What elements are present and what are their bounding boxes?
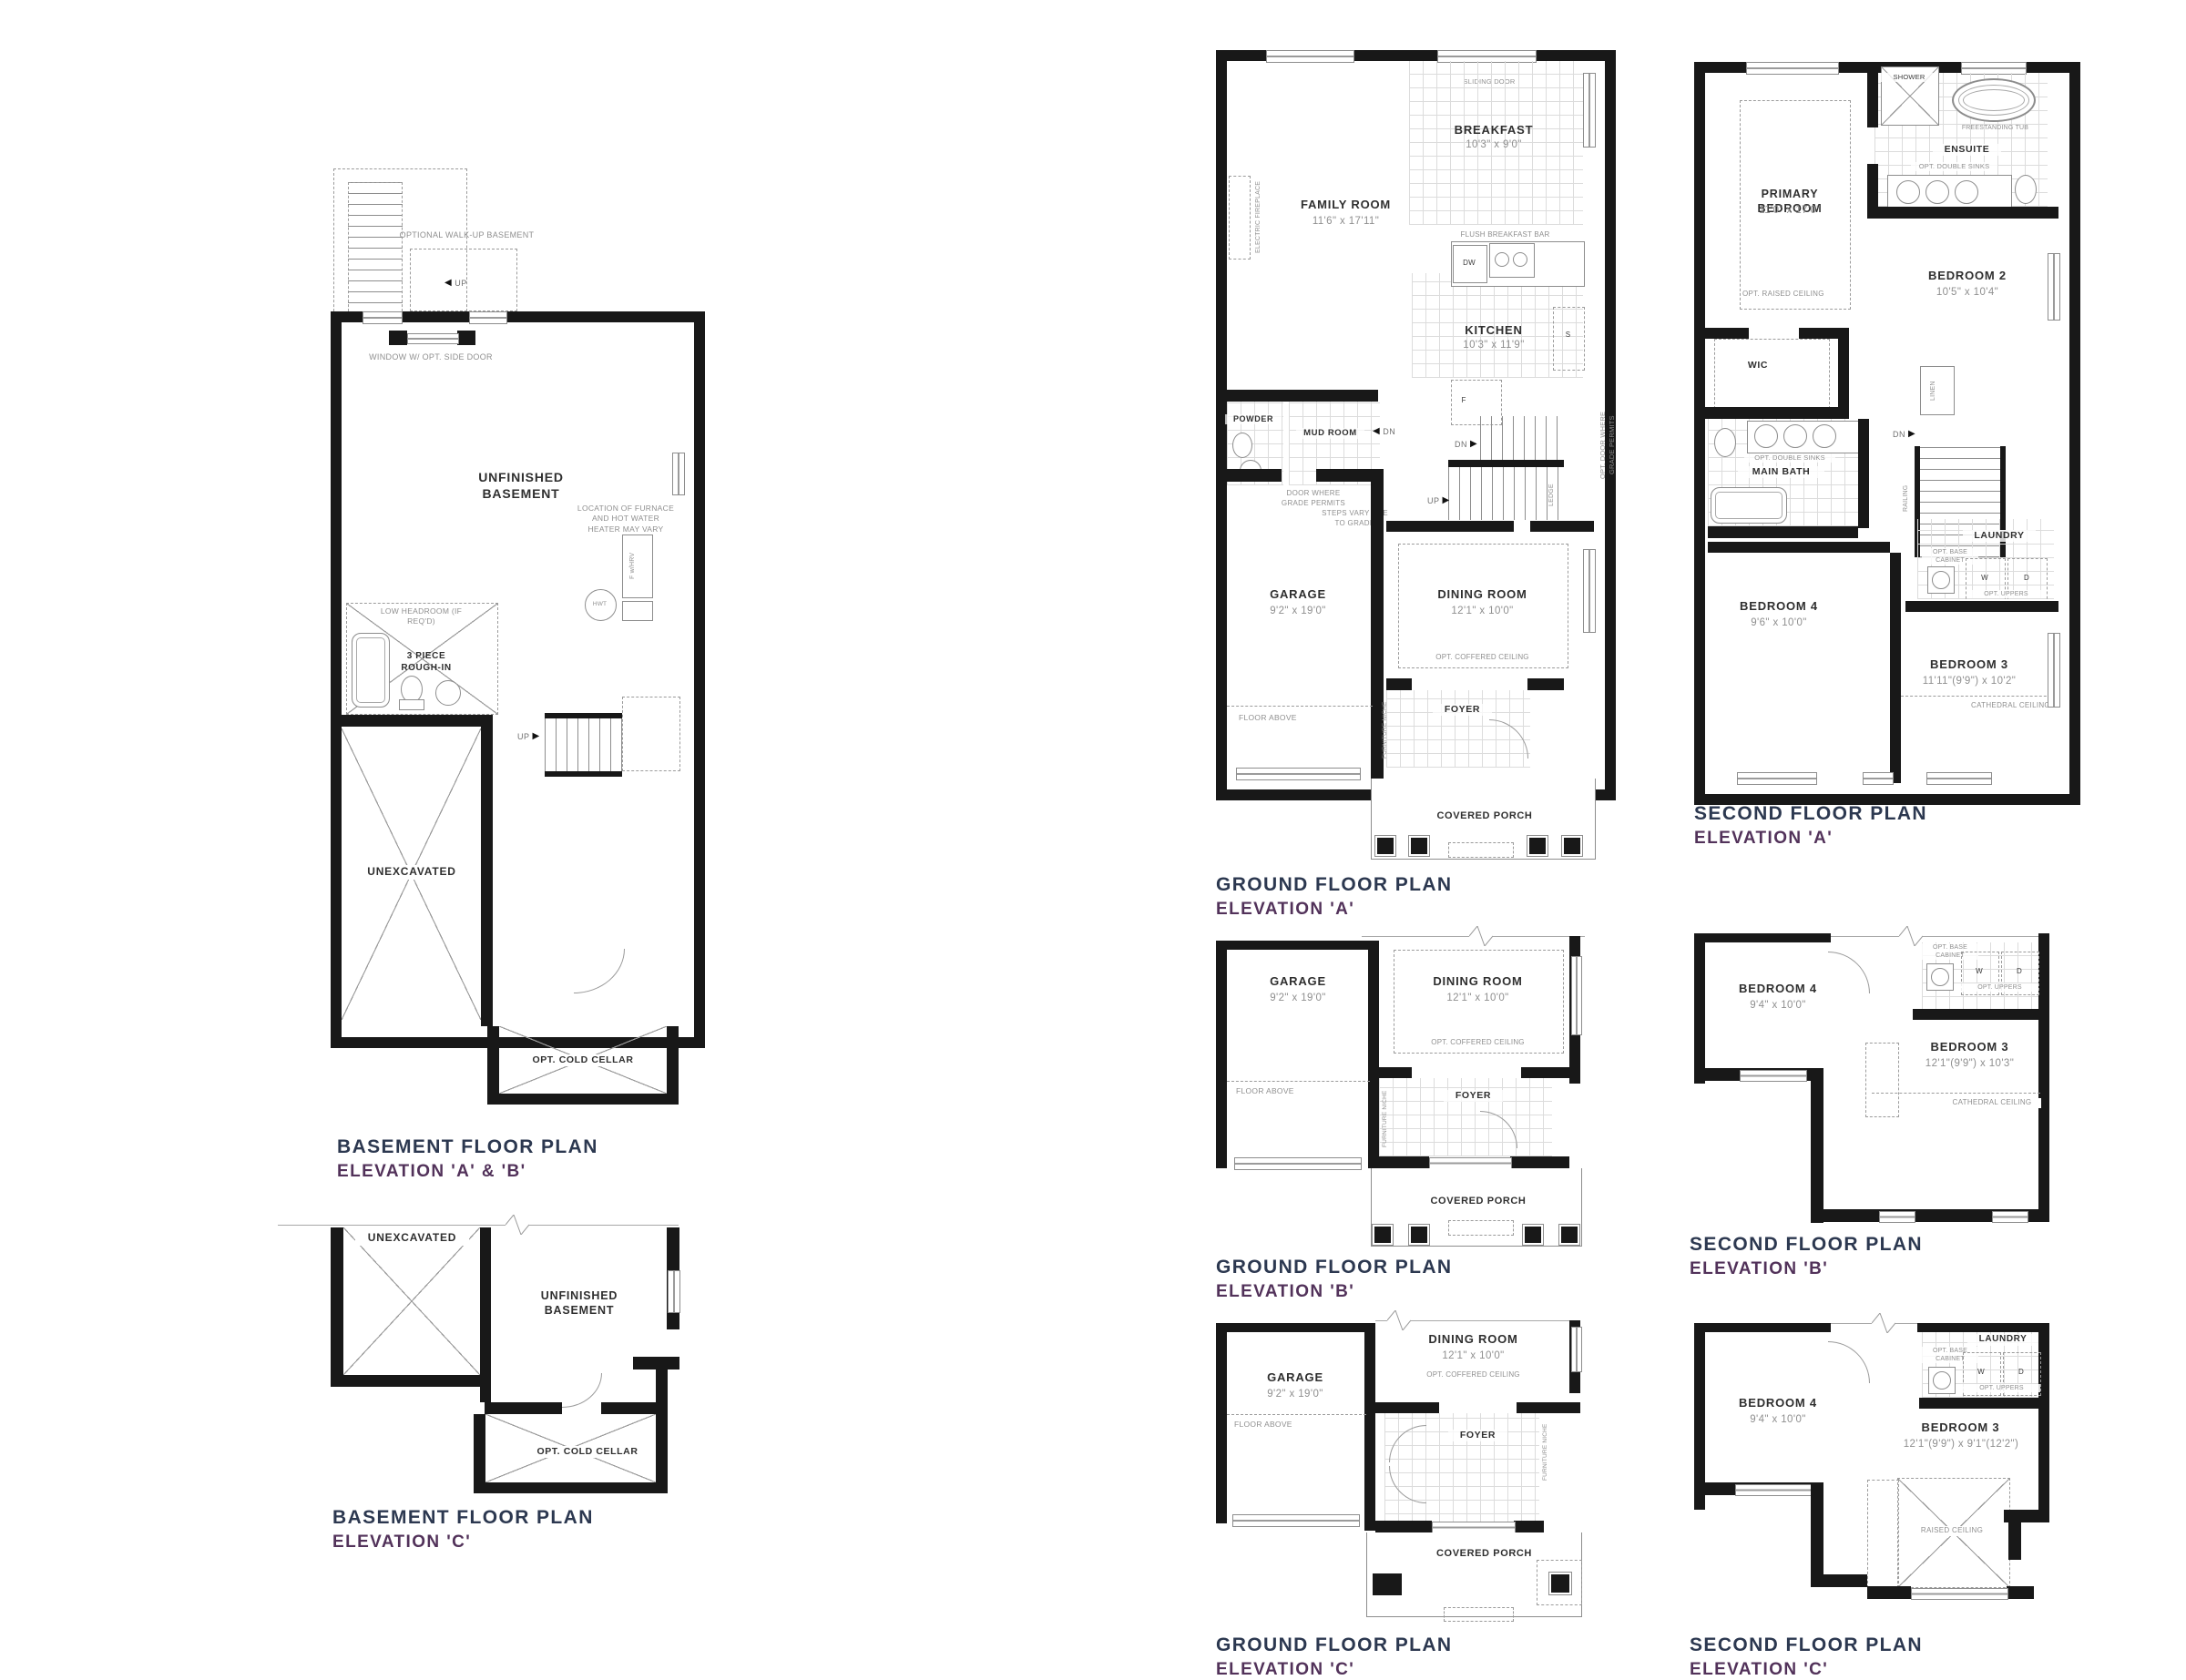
room-label: UNFINISHED BASEMENT	[466, 469, 576, 502]
wall-segment	[485, 1402, 562, 1414]
window	[1583, 549, 1596, 633]
tub-label: FREESTANDING TUB	[1952, 124, 2038, 132]
plan-subtitle: ELEVATION 'B'	[1690, 1259, 1923, 1279]
porch-step	[1448, 842, 1514, 858]
room-dims: 9'6" x 10'0"	[1729, 617, 1829, 628]
window	[1571, 956, 1582, 1035]
plan-subtitle: ELEVATION 'B'	[1216, 1282, 1452, 1302]
wall-segment	[1708, 542, 1890, 553]
room-dims: 12'1"(9'9") x 9'1"(12'2")	[1888, 1439, 2034, 1450]
coffered-label: OPT. COFFERED CEILING	[1398, 1038, 1558, 1047]
left-arrow-icon: ◀	[444, 279, 452, 288]
porch-post	[1375, 836, 1395, 856]
room-dims: 9'2" x 19'0"	[1248, 606, 1348, 616]
washer-label: W	[1961, 967, 1997, 976]
room-label: BEDROOM 4	[1728, 1396, 1828, 1411]
sink	[435, 680, 461, 706]
fireplace	[1229, 176, 1251, 260]
wall-segment	[474, 1414, 485, 1493]
wall-segment	[1375, 1402, 1439, 1413]
wall-segment	[1510, 1156, 1569, 1168]
toilet	[1714, 428, 1736, 457]
up-label: UP	[1427, 496, 1440, 505]
plan-subtitle: ELEVATION 'A'	[1216, 900, 1452, 920]
ground-plan-elevation-a: SLIDING DOOR BREAKFAST 10'3" x 9'0" FLUS…	[1216, 41, 1626, 929]
window	[2048, 633, 2060, 708]
room-label: MUD ROOM	[1296, 428, 1364, 439]
cathedral-line	[1901, 696, 2060, 697]
furniture-niche-label: FURNITURE NICHE	[1382, 1084, 1389, 1155]
closet	[1867, 1480, 1899, 1588]
right-arrow-icon: ▶	[1908, 430, 1915, 439]
window	[1740, 1070, 1807, 1082]
wall-segment	[1517, 1402, 1580, 1413]
room-dims: 9'2" x 19'0"	[1248, 993, 1348, 1003]
walkup-stairs	[348, 182, 403, 316]
room-label: BEDROOM 3	[1904, 1420, 2017, 1436]
door-arc	[562, 1373, 602, 1408]
door-grade-note: DOOR WHERE GRADE PERMITS	[1272, 489, 1354, 509]
plan-title: BASEMENT FLOOR PLAN	[332, 1507, 594, 1529]
railing-label: RAILING	[1902, 472, 1910, 524]
wall-segment	[1216, 941, 1227, 1168]
second-plan-elevation-b: OPT. BASE CABINET W D OPT. UPPERS BEDROO…	[1690, 929, 2086, 1261]
wall-segment	[633, 1357, 679, 1369]
room-label: POWDER	[1225, 414, 1282, 424]
wall-segment	[1811, 1482, 1823, 1587]
porch-post	[1549, 1573, 1571, 1594]
freestanding-tub	[1952, 78, 2036, 122]
floor-above-line	[1227, 1414, 1366, 1415]
wall-segment	[601, 1402, 668, 1414]
dryer-label: D	[2007, 574, 2046, 583]
wall-segment	[1694, 407, 1849, 419]
plan-title-block: SECOND FLOOR PLAN ELEVATION 'B'	[1690, 1234, 1923, 1279]
basement-plan-elevation-c: UNEXCAVATED UNFINISHED BASEMENT OPT. COL…	[328, 1220, 720, 1671]
floor-above-label: FLOOR ABOVE	[1236, 1086, 1313, 1096]
plan-subtitle: ELEVATION 'C'	[332, 1532, 594, 1553]
porch-post	[1523, 1225, 1543, 1245]
window	[1911, 1588, 2008, 1600]
garage-door	[1236, 768, 1361, 780]
plan-title: SECOND FLOOR PLAN	[1690, 1634, 1923, 1656]
sink-bowl	[1933, 1371, 1951, 1390]
ground-plan-elevation-b: GARAGE 9'2" x 19'0" FLOOR ABOVE DINING R…	[1216, 933, 1626, 1311]
right-arrow-icon: ▶	[533, 732, 540, 741]
uppers-label: OPT. UPPERS	[1967, 590, 2045, 598]
wall-segment	[1867, 1586, 1911, 1599]
wall-segment	[1811, 1068, 1823, 1223]
window	[1571, 1327, 1582, 1372]
porch-step	[1444, 1607, 1514, 1622]
wall-segment	[1368, 941, 1379, 1168]
wall-segment	[331, 1375, 491, 1387]
window	[1583, 73, 1596, 148]
wall-segment	[1913, 1009, 2049, 1020]
basement-plan-elevation-ab: OPTIONAL WALK-UP BASEMENT ◀UP WINDOW W/ …	[328, 118, 720, 1197]
wall-segment	[1386, 521, 1514, 532]
floor-above-line	[1227, 706, 1373, 707]
raised-ceiling-label: RAISED CEILING	[1906, 1526, 1997, 1536]
floor-plan-sheet: { "document": {"type": "architectural fl…	[0, 0, 2186, 1671]
garage-door	[1232, 1514, 1360, 1527]
room-label: GARAGE	[1248, 587, 1348, 603]
room-label: BREAKFAST	[1448, 123, 1539, 138]
closet	[1865, 1043, 1899, 1117]
raised-ceiling-label: OPT. RAISED CEILING	[1742, 290, 1844, 300]
stairs-lower	[1448, 467, 1564, 520]
stairs-up: UP▶	[517, 732, 540, 741]
room-label: DINING ROOM	[1425, 587, 1539, 603]
stairs-upper	[1480, 416, 1564, 460]
wall-segment	[1694, 933, 1831, 942]
room-dims: 12'1" x 10'0"	[1416, 1350, 1530, 1361]
plan-subtitle: ELEVATION 'A'	[1694, 829, 1927, 849]
wall-segment	[1527, 678, 1564, 690]
stove-label: S	[1553, 331, 1583, 340]
room-label: LAUNDRY	[1963, 530, 2036, 542]
side-door-window	[407, 333, 459, 344]
wall-segment	[1216, 1323, 1375, 1332]
porch-post	[1409, 1225, 1429, 1245]
room-label: LAUNDRY	[1967, 1334, 2038, 1346]
box	[622, 601, 653, 621]
porch-label: COVERED PORCH	[1418, 1548, 1550, 1561]
double-sinks-label: OPT. DOUBLE SINKS	[1744, 453, 1835, 463]
wall-segment	[2008, 1510, 2021, 1560]
toilet	[2015, 175, 2037, 204]
dryer-label: D	[2003, 1368, 2039, 1377]
dn-label: DN	[1455, 440, 1467, 449]
plan-title-block: BASEMENT FLOOR PLAN ELEVATION 'A' & 'B'	[337, 1136, 598, 1182]
room-label: GARAGE	[1245, 1370, 1345, 1386]
floor-above-label: FLOOR ABOVE	[1234, 1420, 1312, 1430]
wall-segment	[1858, 419, 1869, 528]
window	[1992, 1211, 2028, 1223]
sink	[1896, 180, 1920, 204]
room-label: BEDROOM 3	[1917, 1040, 2022, 1055]
dn-label: DN	[1383, 427, 1395, 436]
plan-title-block: SECOND FLOOR PLAN ELEVATION 'C'	[1690, 1634, 1923, 1680]
room-dims: 10'3" x 11'9"	[1444, 340, 1544, 351]
shower-label: SHOWER	[1881, 73, 1937, 82]
wall-segment	[1216, 941, 1375, 950]
double-sinks-label: OPT. DOUBLE SINKS	[1911, 162, 1997, 171]
wall-segment	[656, 1414, 668, 1493]
sink	[1955, 180, 1978, 204]
furnace-label: F w/HRV	[628, 539, 637, 592]
door-arc	[1828, 952, 1870, 993]
room-dims: 11'11"(9'9") x 10'2"	[1910, 676, 2028, 687]
right-arrow-icon: ▶	[1443, 496, 1450, 505]
wic-outline	[1714, 339, 1830, 409]
window	[668, 1270, 680, 1313]
cathedral-label: CATHEDRAL CEILING	[1963, 701, 2058, 711]
wall-segment	[1867, 73, 1878, 127]
sink-bowl	[1513, 252, 1527, 267]
wall-segment	[1905, 601, 2058, 612]
room-dims: 9'4" x 10'0"	[1728, 1000, 1828, 1011]
furniture-niche-label: FURNITURE NICHE	[1382, 695, 1389, 766]
walkup-label: OPTIONAL WALK-UP BASEMENT	[383, 229, 551, 240]
wall-segment	[2038, 933, 2049, 1220]
room-label: KITCHEN	[1444, 323, 1544, 339]
floor-above-label: FLOOR ABOVE	[1239, 713, 1316, 723]
room-label: OPT. COLD CELLAR	[533, 1446, 642, 1458]
room-label: GARAGE	[1248, 974, 1348, 990]
linen-label: LINEN	[1929, 372, 1937, 410]
porch-label: COVERED PORCH	[1415, 1196, 1542, 1208]
wall-segment	[1379, 1067, 1412, 1078]
second-plan-elevation-a: SHOWER FREESTANDING TUB ENSUITE OPT. DOU…	[1694, 46, 2086, 847]
room-label: FAMILY ROOM	[1289, 198, 1403, 213]
mudroom-dn: ◀DN	[1373, 427, 1395, 436]
wall-segment	[1694, 328, 1749, 339]
window	[1266, 50, 1354, 63]
wall-segment	[1694, 1323, 1705, 1510]
toilet	[1232, 433, 1252, 458]
break-mark-icon	[1899, 926, 1923, 946]
washer-label: W	[1966, 574, 2004, 583]
plan-title-block: BASEMENT FLOOR PLAN ELEVATION 'C'	[332, 1507, 594, 1553]
plan-title-block: GROUND FLOOR PLAN ELEVATION 'B'	[1216, 1257, 1452, 1302]
furnace-note: LOCATION OF FURNACE AND HOT WATER HEATER…	[576, 504, 676, 535]
wall-segment	[487, 1094, 679, 1105]
wall-segment	[2007, 1586, 2034, 1599]
wall-segment	[1838, 328, 1849, 414]
coffered-label: OPT. COFFERED CEILING	[1394, 1370, 1553, 1380]
coffered-label: OPT. COFFERED CEILING	[1403, 653, 1562, 662]
room-label: FOYER	[1444, 1090, 1503, 1102]
rough-in-label: 3 PIECE ROUGH-IN	[395, 651, 457, 674]
wall-segment	[1521, 1067, 1569, 1078]
break-mark-icon	[1872, 1313, 1895, 1333]
left-arrow-icon: ◀	[1373, 427, 1380, 436]
room-label: UNEXCAVATED	[355, 1231, 469, 1246]
plan-title-block: SECOND FLOOR PLAN ELEVATION 'A'	[1694, 803, 1927, 849]
wall-segment	[1890, 553, 1901, 783]
wall-segment	[1514, 1521, 1544, 1532]
plan-title: SECOND FLOOR PLAN	[1694, 803, 1927, 825]
door-arc	[1828, 1341, 1870, 1383]
raised-ceiling-outline	[1740, 100, 1851, 310]
room-dims: 9'2" x 19'0"	[1245, 1389, 1345, 1400]
door-post	[457, 331, 475, 345]
wall-segment	[331, 1227, 343, 1387]
ledge-label: LEDGE	[1548, 476, 1556, 514]
room-label: OPT. COLD CELLAR	[519, 1054, 647, 1066]
stairs	[545, 713, 622, 777]
plan-subtitle: ELEVATION 'C'	[1216, 1660, 1452, 1680]
porch-post	[1527, 836, 1548, 856]
side-door-label: WINDOW W/ OPT. SIDE DOOR	[344, 351, 517, 362]
window	[672, 453, 685, 495]
room-label: DINING ROOM	[1421, 974, 1535, 990]
room-label: WIC	[1731, 360, 1785, 372]
dryer-label: D	[2001, 967, 2038, 976]
wall-segment	[1375, 1521, 1432, 1532]
right-arrow-icon: ▶	[1470, 440, 1477, 449]
sink	[1813, 424, 1836, 448]
ground-plan-elevation-c: DINING ROOM 12'1" x 10'0" OPT. COFFERED …	[1216, 1316, 1626, 1671]
stairs-dn: DN▶	[1455, 440, 1477, 449]
window	[1863, 772, 1894, 785]
porch-post	[1562, 836, 1582, 856]
sink	[1926, 180, 1949, 204]
fridge-label: F	[1455, 396, 1473, 405]
break-mark-icon	[1469, 926, 1493, 946]
opt-door-grade-label: OPT. DOOR WHERE GRADE PERMITS	[1599, 403, 1619, 487]
cathedral-line	[1872, 1093, 2040, 1094]
porch-post	[1373, 1573, 1402, 1595]
wall-segment	[1379, 1156, 1429, 1168]
room-dims: 9'4" x 10'0"	[1728, 1414, 1828, 1425]
plan-title-block: GROUND FLOOR PLAN ELEVATION 'C'	[1216, 1634, 1452, 1680]
window	[1926, 772, 1992, 785]
up-label: UP	[517, 732, 530, 741]
stairs-dn: DN▶	[1893, 430, 1915, 439]
wall-segment	[1708, 526, 1858, 538]
room-label: FOYER	[1433, 704, 1492, 716]
break-line	[1826, 936, 2049, 937]
room-dims: 10'3" x 9'0"	[1448, 139, 1539, 150]
wall-segment	[1917, 1323, 2049, 1332]
room-label: ENSUITE	[1933, 144, 2001, 156]
window	[363, 311, 403, 324]
wall-segment	[1694, 1323, 1831, 1332]
wall-segment	[1364, 1323, 1375, 1531]
porch-step	[1448, 1220, 1514, 1236]
fireplace-label: ELECTRIC FIREPLACE	[1254, 171, 1262, 262]
room-label: UNFINISHED BASEMENT	[525, 1288, 634, 1319]
wall-segment	[1386, 678, 1412, 690]
room-label: DINING ROOM	[1416, 1332, 1530, 1348]
hwt-label: HWT	[585, 601, 615, 608]
room-label: UNEXCAVATED	[357, 865, 466, 880]
wall-segment	[2038, 1323, 2049, 1510]
wall-segment	[474, 1482, 668, 1493]
room-dims: 11'6" x 17'11"	[1289, 216, 1403, 227]
break-line	[278, 1225, 679, 1226]
wall-segment	[1811, 1574, 1867, 1587]
window	[1737, 772, 1817, 785]
dn-label: DN	[1893, 430, 1905, 439]
window	[469, 311, 507, 324]
wall-segment	[1227, 390, 1378, 402]
toilet-tank	[399, 699, 424, 710]
wall-segment	[1694, 933, 1705, 1084]
wall-segment	[1874, 207, 2058, 219]
walkup-up: ◀UP	[444, 279, 467, 288]
room-dims: 12'1" x 10'0"	[1425, 606, 1539, 616]
room-dims: 12'1"(9'9") x 10'3"	[1908, 1058, 2031, 1069]
room-label: BEDROOM 3	[1919, 657, 2019, 673]
sink-bowl	[1931, 968, 1949, 986]
plan-subtitle: ELEVATION 'C'	[1690, 1660, 1923, 1680]
uppers-label: OPT. UPPERS	[1963, 1384, 2040, 1392]
furniture-niche-label: FURNITURE NICHE	[1542, 1418, 1549, 1486]
wall-segment	[1919, 1398, 2049, 1409]
cathedral-label: CATHEDRAL CEILING	[1943, 1098, 2041, 1108]
break-mark-icon	[506, 1215, 529, 1235]
plan-title: GROUND FLOOR PLAN	[1216, 1257, 1452, 1278]
washer-label: W	[1963, 1368, 1999, 1377]
wall-segment	[340, 715, 493, 727]
furnace-box	[622, 535, 653, 598]
porch-post	[1559, 1225, 1579, 1245]
window	[1879, 1211, 1915, 1223]
porch-post	[1373, 1225, 1393, 1245]
window	[1735, 1484, 1814, 1496]
room-label: BEDROOM 2	[1917, 269, 2017, 284]
bathtub	[1711, 487, 1787, 524]
second-plan-elevation-c: LAUNDRY OPT. BASE CABINET W D OPT. UPPER…	[1690, 1316, 2086, 1671]
room-dims: 12'1" x 10'0"	[1421, 993, 1535, 1003]
uppers-label: OPT. UPPERS	[1961, 983, 2038, 992]
wall-segment	[481, 715, 493, 1026]
porch-label: COVERED PORCH	[1421, 810, 1548, 823]
room-label: FOYER	[1448, 1430, 1507, 1441]
room-dims: 10'5" x 10'4"	[1917, 287, 2017, 298]
room-label: MAIN BATH	[1738, 466, 1824, 478]
plan-title: SECOND FLOOR PLAN	[1690, 1234, 1923, 1256]
wall-segment	[1530, 521, 1594, 532]
sink	[1754, 424, 1778, 448]
plan-title-block: GROUND FLOOR PLAN ELEVATION 'A'	[1216, 874, 1452, 920]
flush-bar-label: FLUSH BREAKFAST BAR	[1453, 230, 1558, 239]
up-label: UP	[455, 279, 467, 288]
unexcavated-hatch	[343, 1227, 480, 1375]
dw-label: DW	[1453, 259, 1486, 268]
door-post	[389, 331, 407, 345]
wall-segment	[1227, 469, 1282, 482]
window	[2048, 253, 2060, 321]
sink-bowl	[1932, 571, 1950, 589]
sink	[1783, 424, 1807, 448]
plan-title: BASEMENT FLOOR PLAN	[337, 1136, 598, 1158]
tub	[352, 633, 390, 708]
window	[1746, 62, 1839, 75]
plan-subtitle: ELEVATION 'A' & 'B'	[337, 1162, 598, 1182]
wall-segment	[1216, 1323, 1227, 1523]
garage-door	[1234, 1157, 1362, 1170]
plan-title: GROUND FLOOR PLAN	[1216, 874, 1452, 896]
stair-bar	[1448, 460, 1564, 467]
break-mark-icon	[1387, 1310, 1411, 1330]
plan-title: GROUND FLOOR PLAN	[1216, 1634, 1452, 1656]
porch-post	[1409, 836, 1429, 856]
room-label: BEDROOM 4	[1729, 599, 1829, 615]
low-headroom: LOW HEADROOM (IF REQ'D)	[378, 606, 465, 627]
sink-bowl	[1495, 252, 1509, 267]
stairs-up: UP▶	[1427, 496, 1450, 505]
room-label: BEDROOM 4	[1728, 982, 1828, 997]
floor-above-line	[1227, 1081, 1370, 1082]
stairs-dashed	[622, 697, 680, 771]
